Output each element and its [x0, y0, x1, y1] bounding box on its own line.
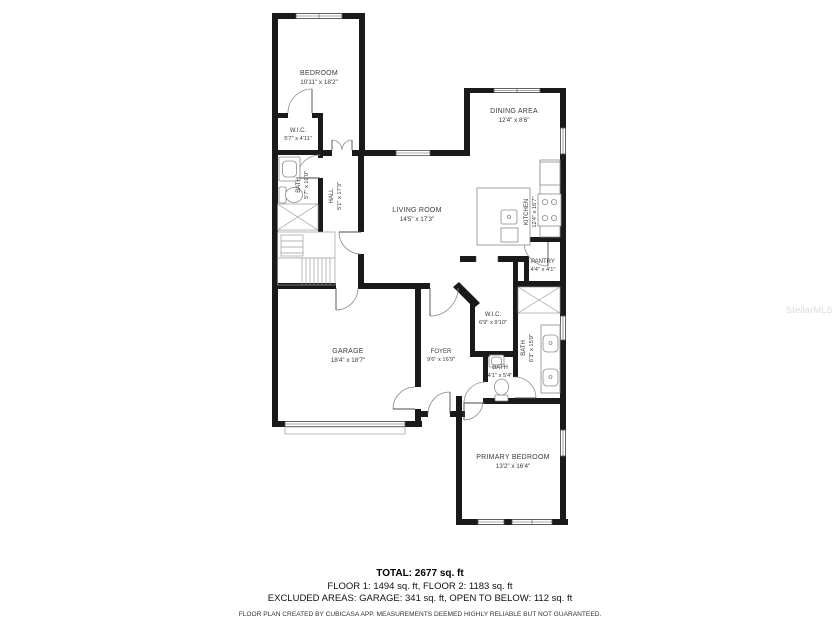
toilet-icon: [495, 379, 509, 401]
svg-text:6'3" x 15'9": 6'3" x 15'9": [529, 334, 535, 362]
svg-text:BATH: BATH: [492, 365, 508, 371]
footer-summary: TOTAL: 2677 sq. ft FLOOR 1: 1494 sq. ft,…: [239, 568, 602, 618]
svg-text:9'6" x 16'9": 9'6" x 16'9": [427, 357, 455, 363]
svg-text:HALL: HALL: [329, 188, 335, 204]
room-label-dining: DINING AREA 12'4" x 8'6": [490, 108, 538, 124]
room-label-garage: GARAGE 18'4" x 18'7": [331, 348, 366, 364]
room-label-wic2: W.I.C. 5'7" x 4'11": [284, 128, 312, 142]
double-door-arc: [332, 140, 352, 150]
door-arc: [393, 387, 415, 409]
svg-text:KITCHEN: KITCHEN: [524, 199, 530, 225]
sink-icon: [543, 335, 558, 352]
room-label-wic1: W.I.C. 6'9" x 9'10": [479, 312, 507, 326]
svg-text:BEDROOM: BEDROOM: [300, 70, 338, 77]
door-arc: [428, 392, 450, 414]
room-label-foyer: FOYER 9'6" x 16'9": [427, 349, 455, 363]
svg-text:W.I.C.: W.I.C.: [290, 128, 307, 134]
stove-icon: [538, 194, 561, 226]
svg-text:4'4" x 4'1": 4'4" x 4'1": [531, 267, 556, 273]
door-arc: [430, 288, 458, 316]
mls-watermark: StellarMLS: [786, 305, 833, 315]
window: [296, 14, 342, 19]
room-label-bath-half: BATH 4'1" x 5'4": [488, 365, 513, 379]
room-label-kitchen: KITCHEN 12'4" x 16'7": [524, 196, 538, 227]
room-label-primary-bedroom: PRIMARY BEDROOM 13'2" x 16'4": [476, 454, 550, 470]
svg-text:5'1" x 17'3": 5'1" x 17'3": [337, 182, 343, 210]
svg-text:10'11" x 18'2": 10'11" x 18'2": [300, 79, 338, 86]
svg-text:5'7" x 4'11": 5'7" x 4'11": [284, 136, 312, 142]
room-label-pantry: PANTRY 4'4" x 4'1": [531, 259, 556, 273]
closet-x: [278, 204, 319, 230]
svg-text:5'7" x 10'0": 5'7" x 10'0": [304, 171, 310, 199]
svg-text:13'2" x 16'4": 13'2" x 16'4": [496, 463, 531, 470]
svg-text:12'4" x 8'6": 12'4" x 8'6": [498, 117, 529, 124]
closet-x: [518, 287, 560, 313]
svg-text:DINING AREA: DINING AREA: [490, 108, 538, 115]
svg-text:14'5" x 17'3": 14'5" x 17'3": [400, 216, 435, 223]
staircase: [278, 232, 336, 285]
kitchen-island: [477, 188, 530, 245]
excluded-areas-text: EXCLUDED AREAS: GARAGE: 341 sq. ft, OPEN…: [268, 593, 573, 604]
svg-text:PRIMARY BEDROOM: PRIMARY BEDROOM: [476, 454, 550, 461]
svg-text:BATH: BATH: [521, 340, 527, 356]
floor-plan-page: BEDROOM 10'11" x 18'2" W.I.C. 5'7" x 4'1…: [0, 0, 840, 630]
svg-text:W.I.C.: W.I.C.: [485, 312, 502, 318]
door-arc: [515, 377, 536, 398]
window: [561, 128, 566, 154]
window: [561, 316, 566, 340]
window: [512, 520, 552, 525]
svg-text:6'9" x 9'10": 6'9" x 9'10": [479, 320, 507, 326]
window: [396, 151, 430, 156]
door-arc: [288, 89, 312, 113]
sink-icon: [543, 369, 558, 386]
svg-text:4'1" x 5'4": 4'1" x 5'4": [488, 373, 513, 379]
room-label-hall: HALL 5'1" x 17'3": [329, 182, 343, 210]
total-area-text: TOTAL: 2677 sq. ft: [376, 568, 464, 579]
disclaimer-text: FLOOR PLAN CREATED BY CUBICASA APP. MEAS…: [239, 611, 602, 618]
svg-text:PANTRY: PANTRY: [531, 259, 555, 265]
window: [561, 430, 566, 456]
room-label-bedroom: BEDROOM 10'11" x 18'2": [300, 70, 338, 86]
svg-text:18'4" x 18'7": 18'4" x 18'7": [331, 357, 366, 364]
cased-opening: [476, 256, 498, 262]
svg-text:GARAGE: GARAGE: [332, 348, 364, 355]
window: [494, 89, 540, 93]
svg-text:12'4" x 16'7": 12'4" x 16'7": [532, 196, 538, 227]
room-label-bath1: BATH 6'3" x 15'9": [521, 334, 535, 362]
window: [478, 520, 504, 525]
door-arc: [464, 382, 485, 403]
svg-text:FOYER: FOYER: [431, 349, 452, 355]
svg-text:BATH: BATH: [296, 177, 302, 193]
room-label-living: LIVING ROOM 14'5" x 17'3": [392, 207, 441, 223]
floor-areas-text: FLOOR 1: 1494 sq. ft, FLOOR 2: 1183 sq. …: [327, 581, 513, 592]
garage-door: [285, 422, 405, 435]
door-arc: [464, 401, 483, 420]
floor-plan-drawing: BEDROOM 10'11" x 18'2" W.I.C. 5'7" x 4'1…: [0, 0, 840, 630]
door-arc: [339, 232, 361, 254]
door-arc: [336, 288, 358, 310]
svg-text:LIVING ROOM: LIVING ROOM: [392, 207, 441, 214]
